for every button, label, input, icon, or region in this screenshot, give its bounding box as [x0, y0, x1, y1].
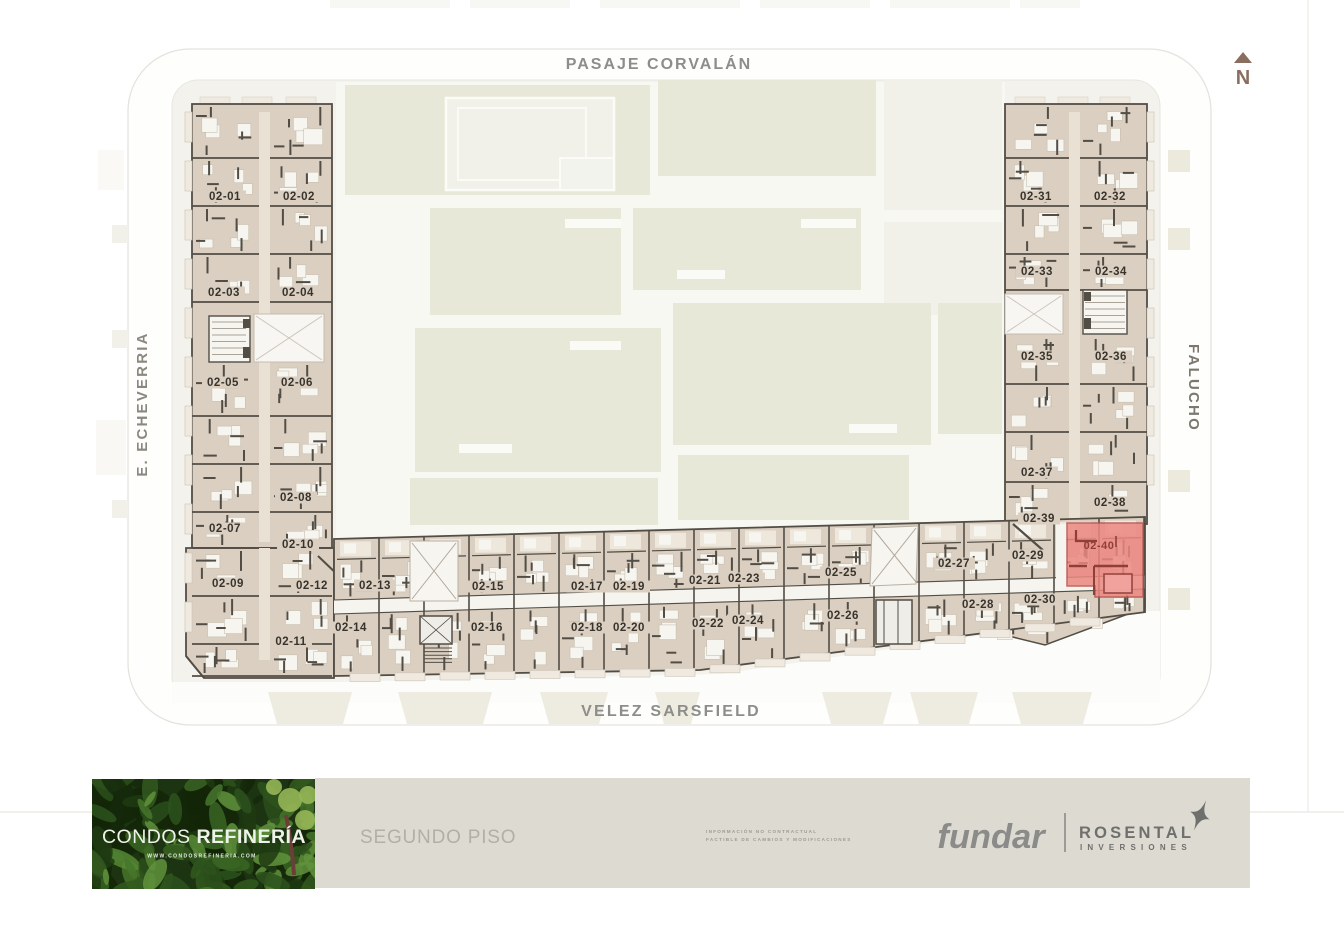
svg-text:02-08: 02-08	[280, 492, 312, 504]
svg-text:02-39: 02-39	[1023, 513, 1055, 525]
svg-text:02-32: 02-32	[1094, 191, 1126, 203]
svg-text:INFORMACIÓN NO CONTRACTUAL: INFORMACIÓN NO CONTRACTUAL	[706, 827, 817, 834]
svg-text:02-19: 02-19	[613, 581, 645, 593]
svg-text:02-03: 02-03	[208, 287, 240, 299]
svg-text:02-23: 02-23	[728, 573, 760, 585]
svg-text:02-21: 02-21	[689, 575, 721, 587]
svg-text:E. ECHEVERRIA: E. ECHEVERRIA	[134, 331, 151, 476]
svg-text:WWW.CONDOSREFINERIA.COM: WWW.CONDOSREFINERIA.COM	[147, 854, 256, 860]
svg-text:02-18: 02-18	[571, 622, 603, 634]
svg-text:SEGUNDO PISO: SEGUNDO PISO	[360, 827, 516, 848]
svg-text:02-38: 02-38	[1094, 497, 1126, 509]
svg-text:02-33: 02-33	[1021, 266, 1053, 278]
svg-text:02-06: 02-06	[281, 377, 313, 389]
svg-text:02-28: 02-28	[962, 599, 994, 611]
svg-text:FALUCHO: FALUCHO	[1185, 344, 1202, 432]
svg-text:02-40: 02-40	[1084, 540, 1115, 552]
svg-text:02-13: 02-13	[359, 580, 391, 592]
svg-text:02-17: 02-17	[571, 581, 603, 593]
svg-text:02-29: 02-29	[1012, 550, 1044, 562]
svg-text:02-15: 02-15	[472, 581, 504, 593]
svg-text:02-09: 02-09	[212, 578, 244, 590]
svg-text:02-35: 02-35	[1021, 351, 1053, 363]
svg-text:INVERSIONES: INVERSIONES	[1080, 843, 1192, 852]
svg-text:02-20: 02-20	[613, 622, 645, 634]
svg-text:02-04: 02-04	[282, 287, 314, 299]
svg-text:FACTIBLE DE CAMBIOS Y MODIFICA: FACTIBLE DE CAMBIOS Y MODIFICACIONES	[706, 837, 852, 842]
svg-text:02-22: 02-22	[692, 618, 724, 630]
svg-text:02-07: 02-07	[209, 523, 241, 535]
svg-text:02-36: 02-36	[1095, 351, 1127, 363]
svg-text:02-02: 02-02	[283, 191, 315, 203]
svg-text:02-26: 02-26	[827, 610, 859, 622]
svg-text:02-37: 02-37	[1021, 467, 1053, 479]
svg-text:02-11: 02-11	[275, 636, 306, 648]
svg-text:02-34: 02-34	[1095, 266, 1127, 278]
svg-text:02-27: 02-27	[938, 558, 970, 570]
svg-text:CONDOS REFINERÍA: CONDOS REFINERÍA	[102, 825, 306, 848]
svg-text:02-24: 02-24	[732, 615, 764, 627]
svg-text:02-05: 02-05	[207, 377, 239, 389]
svg-text:02-25: 02-25	[825, 567, 857, 579]
svg-text:02-14: 02-14	[335, 622, 367, 634]
svg-text:02-16: 02-16	[471, 622, 503, 634]
svg-text:02-01: 02-01	[209, 191, 241, 203]
svg-text:02-12: 02-12	[296, 580, 328, 592]
svg-text:02-31: 02-31	[1020, 191, 1052, 203]
svg-text:fundar: fundar	[937, 818, 1046, 856]
svg-text:PASAJE CORVALÁN: PASAJE CORVALÁN	[566, 54, 752, 73]
svg-text:02-10: 02-10	[282, 539, 314, 551]
svg-text:N: N	[1236, 67, 1250, 89]
svg-text:02-30: 02-30	[1024, 594, 1056, 606]
svg-text:VELEZ SARSFIELD: VELEZ SARSFIELD	[581, 703, 761, 720]
svg-text:ROSENTAL: ROSENTAL	[1079, 824, 1194, 842]
